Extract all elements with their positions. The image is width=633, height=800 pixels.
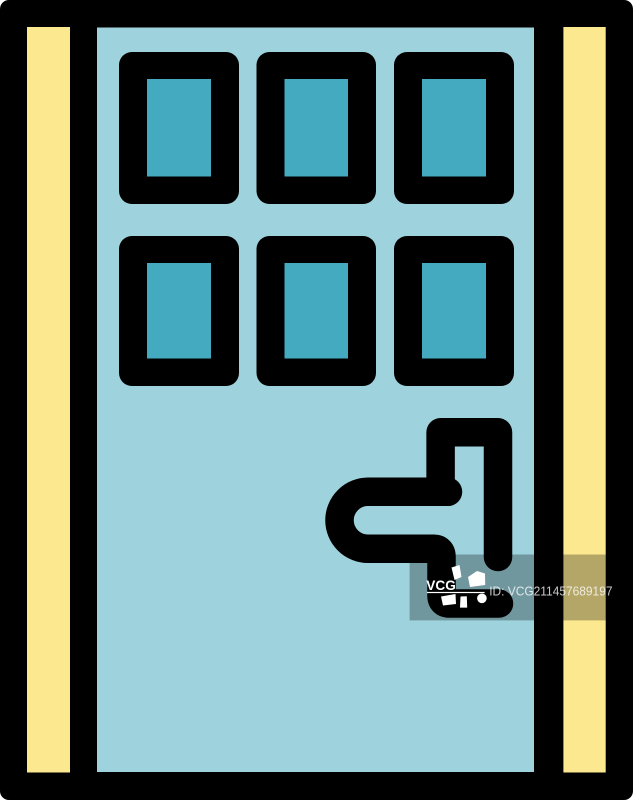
svg-text:ID: VCG211457689197: ID: VCG211457689197 — [489, 583, 612, 598]
svg-text:VCG: VCG — [426, 578, 456, 593]
